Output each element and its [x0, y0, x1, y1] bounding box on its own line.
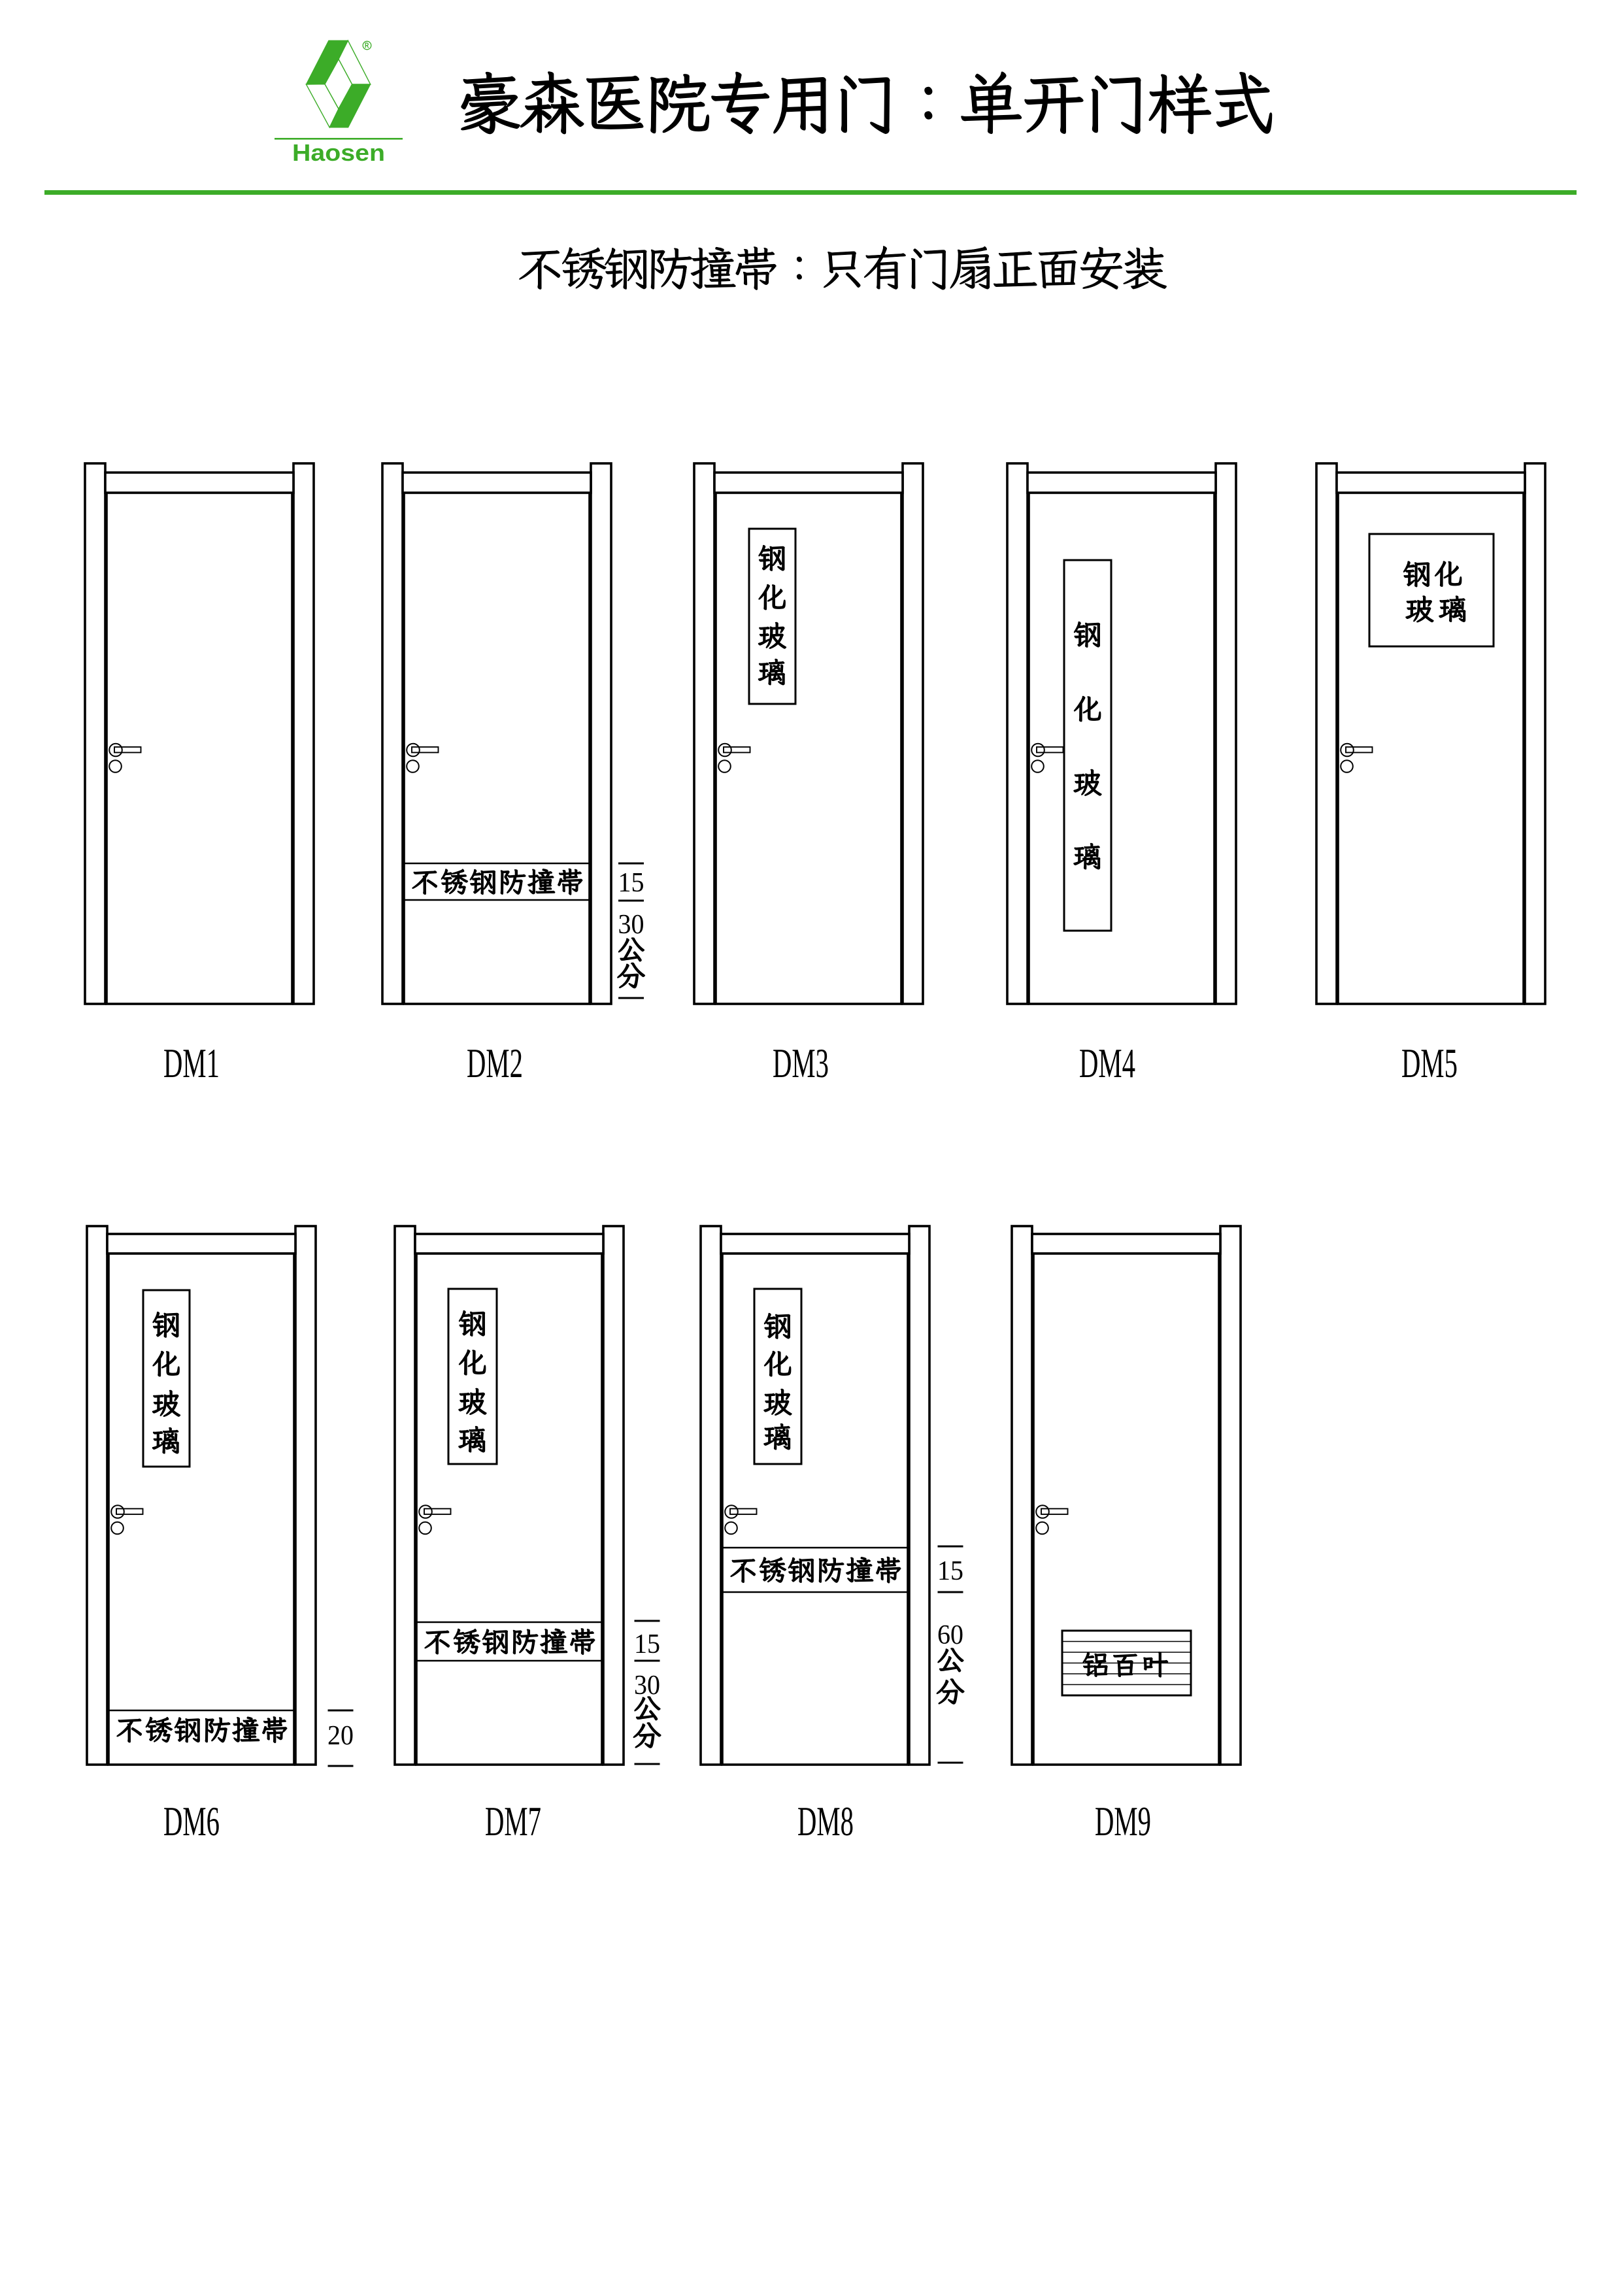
svg-text:DM3: DM3 — [773, 1040, 829, 1086]
svg-text:60: 60 — [937, 1620, 963, 1650]
svg-text:15: 15 — [937, 1556, 963, 1586]
svg-text:15: 15 — [634, 1629, 660, 1659]
svg-text:DM2: DM2 — [467, 1040, 523, 1086]
svg-text:DM4: DM4 — [1079, 1040, 1135, 1086]
svg-text:Haosen: Haosen — [292, 139, 385, 166]
svg-text:DM8: DM8 — [797, 1798, 854, 1844]
svg-text:30: 30 — [618, 910, 644, 940]
svg-text:30: 30 — [634, 1671, 660, 1701]
svg-text:DM1: DM1 — [163, 1040, 220, 1086]
svg-text:DM6: DM6 — [163, 1798, 220, 1844]
svg-text:DM9: DM9 — [1095, 1798, 1151, 1844]
svg-text:20: 20 — [327, 1721, 354, 1751]
svg-text:DM7: DM7 — [485, 1798, 541, 1844]
svg-text:DM5: DM5 — [1401, 1040, 1458, 1086]
svg-text:15: 15 — [618, 868, 644, 898]
